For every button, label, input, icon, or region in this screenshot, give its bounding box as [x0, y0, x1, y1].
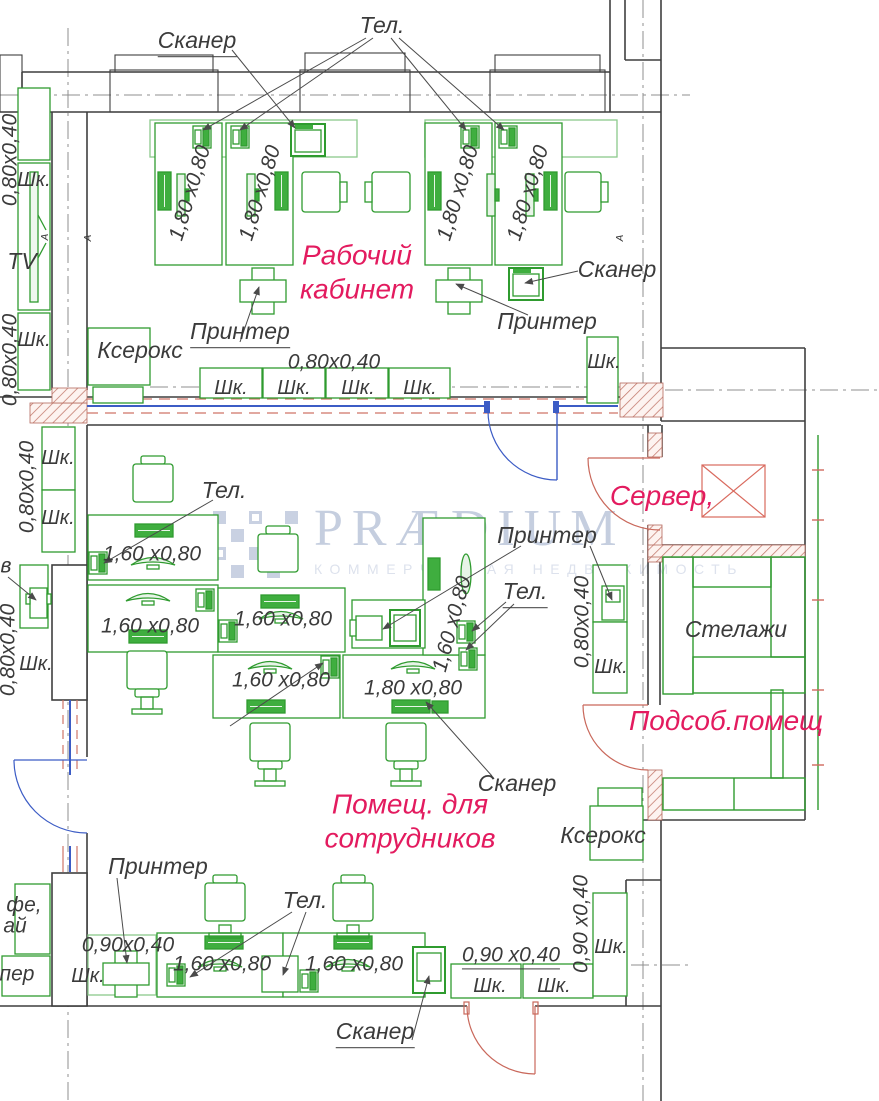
- cabinet-row: [200, 337, 618, 403]
- scanner-icon: [291, 124, 325, 156]
- coffee-cabinet: [15, 884, 50, 954]
- copier-kserox: [88, 328, 150, 403]
- tv-cabinet-column: [18, 88, 50, 390]
- door-podsob-red: [583, 705, 648, 770]
- right-boundary: [812, 435, 824, 810]
- tv-icon: [30, 172, 38, 302]
- keyboard-icon: [392, 700, 430, 713]
- server-rack-symbol: [702, 465, 765, 517]
- copier-kserox-bottom: [590, 788, 643, 860]
- windows: [0, 53, 605, 112]
- furniture-staff-room: [20, 427, 627, 786]
- phone-icon: [219, 620, 237, 642]
- phone-icon: [499, 126, 517, 148]
- phone-icon: [321, 656, 339, 678]
- chair: [250, 723, 290, 786]
- phone-icon: [300, 970, 318, 992]
- keyboard-icon: [428, 172, 441, 210]
- keyboard-icon: [261, 595, 299, 608]
- chair: [205, 875, 245, 938]
- shelving-units: [663, 557, 805, 810]
- printer-cabinet: [2, 956, 50, 996]
- right-printer-cabinet: [593, 565, 627, 693]
- keyboard-icon: [158, 172, 171, 210]
- chair: [133, 456, 173, 502]
- furniture-top-office: [18, 88, 618, 403]
- phone-icon: [461, 126, 479, 148]
- keyboard-icon: [428, 558, 440, 590]
- furniture-bottom: [2, 788, 643, 998]
- phone-icon: [459, 648, 477, 670]
- chair: [356, 616, 382, 640]
- scanner-icon: [413, 947, 445, 993]
- phone-icon: [196, 589, 214, 611]
- phone-icon: [167, 964, 185, 986]
- printer-icon: [240, 268, 286, 314]
- cabinets-bottom-right: [451, 893, 627, 998]
- chair: [386, 723, 426, 786]
- plan-svg: [0, 0, 879, 1101]
- floor-plan-page: { "meta": {"drawing_type": "office floor…: [0, 0, 879, 1101]
- door-left-blue: [14, 760, 87, 833]
- monitor-icon: [461, 554, 471, 594]
- phone-icon: [231, 126, 249, 148]
- scanner-icon: [509, 268, 543, 300]
- keyboard-icon: [275, 172, 288, 210]
- chair: [333, 875, 373, 938]
- chair: [258, 526, 298, 572]
- door-bottom-red: [464, 1002, 538, 1074]
- phone-icon: [193, 126, 211, 148]
- keyboard-icon: [129, 630, 167, 643]
- printer-icon: [436, 268, 482, 314]
- keyboard-icon: [544, 172, 557, 210]
- door-server-red: [588, 458, 660, 530]
- printer-icon: [30, 588, 47, 618]
- side-table: [262, 956, 298, 992]
- chair: [127, 651, 167, 714]
- phone-icon: [457, 621, 475, 643]
